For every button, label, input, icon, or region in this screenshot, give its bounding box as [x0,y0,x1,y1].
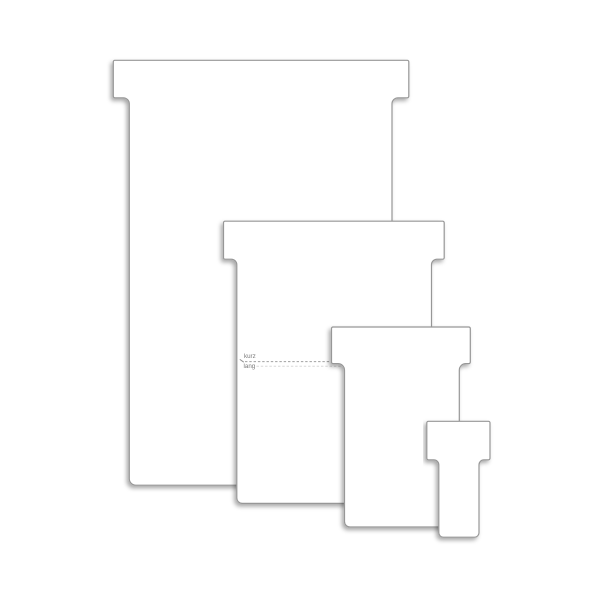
svg-text:kurz: kurz [244,353,256,360]
svg-text:lang: lang [244,363,256,370]
